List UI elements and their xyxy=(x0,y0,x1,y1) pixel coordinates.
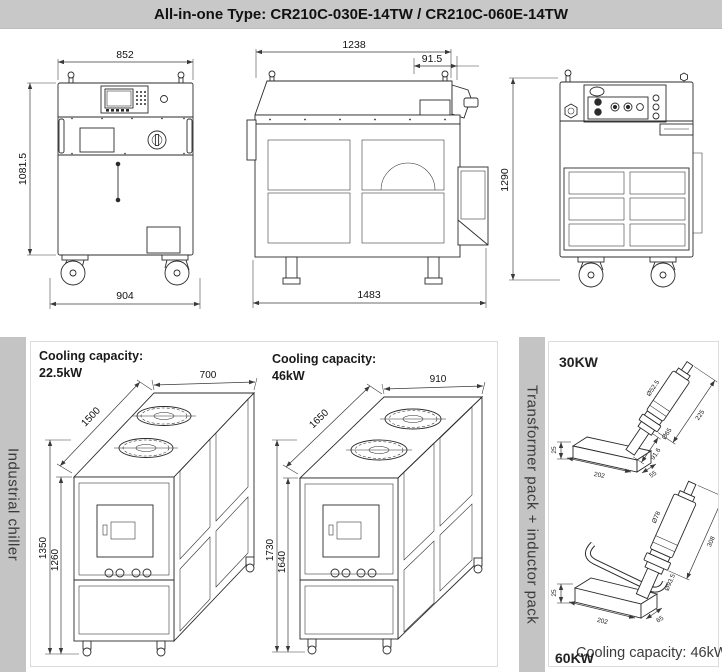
chiller-drawings: 700 1500 1350 1260 xyxy=(31,342,497,666)
hex-fitting-icon xyxy=(565,104,577,118)
dim-front-height: 1081.5 xyxy=(17,153,29,185)
rear-view: 1290 xyxy=(499,70,702,287)
dim-pack60-base-wid: 65 xyxy=(655,615,665,625)
dim-pack60-base-len: 202 xyxy=(596,617,609,626)
caster-right xyxy=(162,255,189,285)
dim-chiller-small-depth: 1500 xyxy=(80,405,104,429)
front-view: 852 1081.5 904 xyxy=(17,49,200,309)
chiller-large-capacity: Cooling capacity: 46kW xyxy=(272,351,376,385)
dim-chiller-large-depth: 1650 xyxy=(307,407,331,431)
dim-rear-height: 1290 xyxy=(499,168,511,192)
drawing-sheet: All-in-one Type: CR210C-030E-14TW / CR21… xyxy=(0,0,722,672)
inductor-panel: 30KW 60KW Cooling capacity: 46kW 202 55 … xyxy=(548,341,719,667)
dim-side-duct-offset: 91.5 xyxy=(422,53,443,65)
caster-rear-right xyxy=(650,257,676,287)
dim-chiller-small-height-total: 1350 xyxy=(38,536,49,559)
pack60-label: 60KW xyxy=(555,650,594,666)
dim-chiller-large-height-total: 1730 xyxy=(265,538,276,561)
pack30-label: 30KW xyxy=(559,354,598,370)
dim-pack30-len: 225 xyxy=(694,409,706,422)
page-title: All-in-one Type: CR210C-030E-14TW / CR21… xyxy=(154,6,568,23)
caster-rear-left xyxy=(578,257,604,287)
dim-front-width-bottom: 904 xyxy=(116,290,134,302)
inductor-drawings: 202 55 25 xyxy=(549,342,718,666)
dim-chiller-large-width: 910 xyxy=(430,374,447,385)
dim-pack60-len: 308 xyxy=(706,535,717,548)
side-view: 1238 91.5 1483 xyxy=(247,39,488,308)
dim-pack30-shaft: 91.6 xyxy=(650,447,663,462)
inductor-60kw-drawing: 202 65 25 xyxy=(551,474,718,626)
power-button-icon xyxy=(161,96,168,103)
dim-chiller-small-height-body: 1260 xyxy=(50,548,61,571)
chiller-large-drawing: 910 1650 1730 1640 xyxy=(265,374,485,654)
dim-pack30-base-wid: 55 xyxy=(648,470,658,480)
inductor-30kw-drawing: 202 55 25 xyxy=(551,352,718,480)
dim-chiller-large-height-body: 1640 xyxy=(277,550,288,573)
sidebar-industrial-chiller: Industrial chiller xyxy=(0,337,26,672)
sidebar-industrial-chiller-label: Industrial chiller xyxy=(5,448,22,561)
dim-pack60-flange: Ø93.5 xyxy=(664,573,678,592)
dim-pack30-base-h: 25 xyxy=(551,446,558,454)
inductor-cooling-caption: Cooling capacity: 46kW xyxy=(576,645,722,661)
rotary-switch-icon xyxy=(148,131,166,149)
chiller-panel: Cooling capacity: 22.5kW Cooling capacit… xyxy=(30,341,498,667)
dim-chiller-small-width: 700 xyxy=(200,370,217,381)
dim-pack60-base-h: 25 xyxy=(551,589,558,597)
side-right-box xyxy=(458,167,488,245)
sidebar-transformer-pack-label: Transformer pack + inductor pack xyxy=(524,385,541,624)
chiller-small-capacity: Cooling capacity: 22.5kW xyxy=(39,348,143,382)
chiller-small-drawing: 700 1500 1350 1260 xyxy=(38,370,257,656)
connector-panel xyxy=(584,85,666,122)
sidebar-transformer-pack: Transformer pack + inductor pack xyxy=(519,337,545,672)
dim-front-width-top: 852 xyxy=(116,49,134,61)
dim-side-width-bottom: 1483 xyxy=(357,289,381,301)
dim-pack60-dia: Ø78 xyxy=(651,510,663,524)
dim-side-width-top: 1238 xyxy=(342,39,366,51)
dim-pack30-base-len: 202 xyxy=(593,471,605,480)
machine-views-drawing: 852 1081.5 904 xyxy=(0,28,722,337)
title-bar: All-in-one Type: CR210C-030E-14TW / CR21… xyxy=(0,0,722,29)
caster-left xyxy=(61,255,88,285)
